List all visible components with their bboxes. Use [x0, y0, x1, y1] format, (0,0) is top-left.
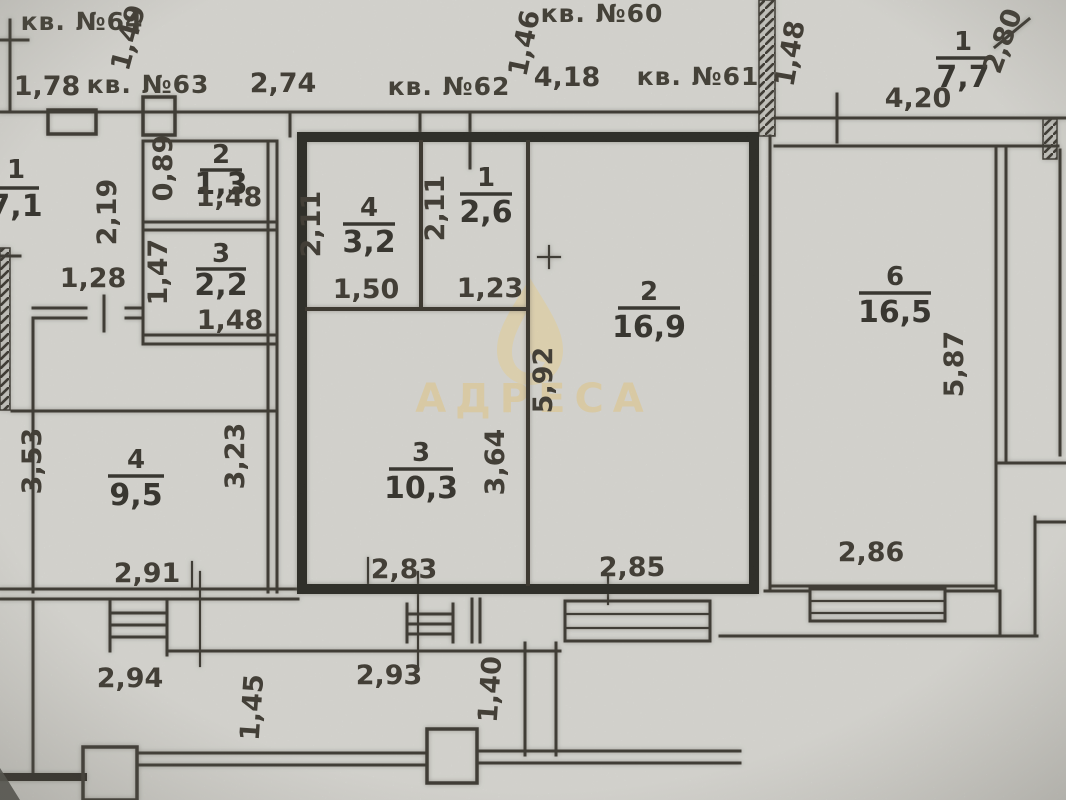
- floor-plan-drawing: АДРЕСА: [0, 0, 1066, 800]
- floorplan-photo: АДРЕСА: [0, 0, 1066, 800]
- vignette: [0, 0, 1066, 800]
